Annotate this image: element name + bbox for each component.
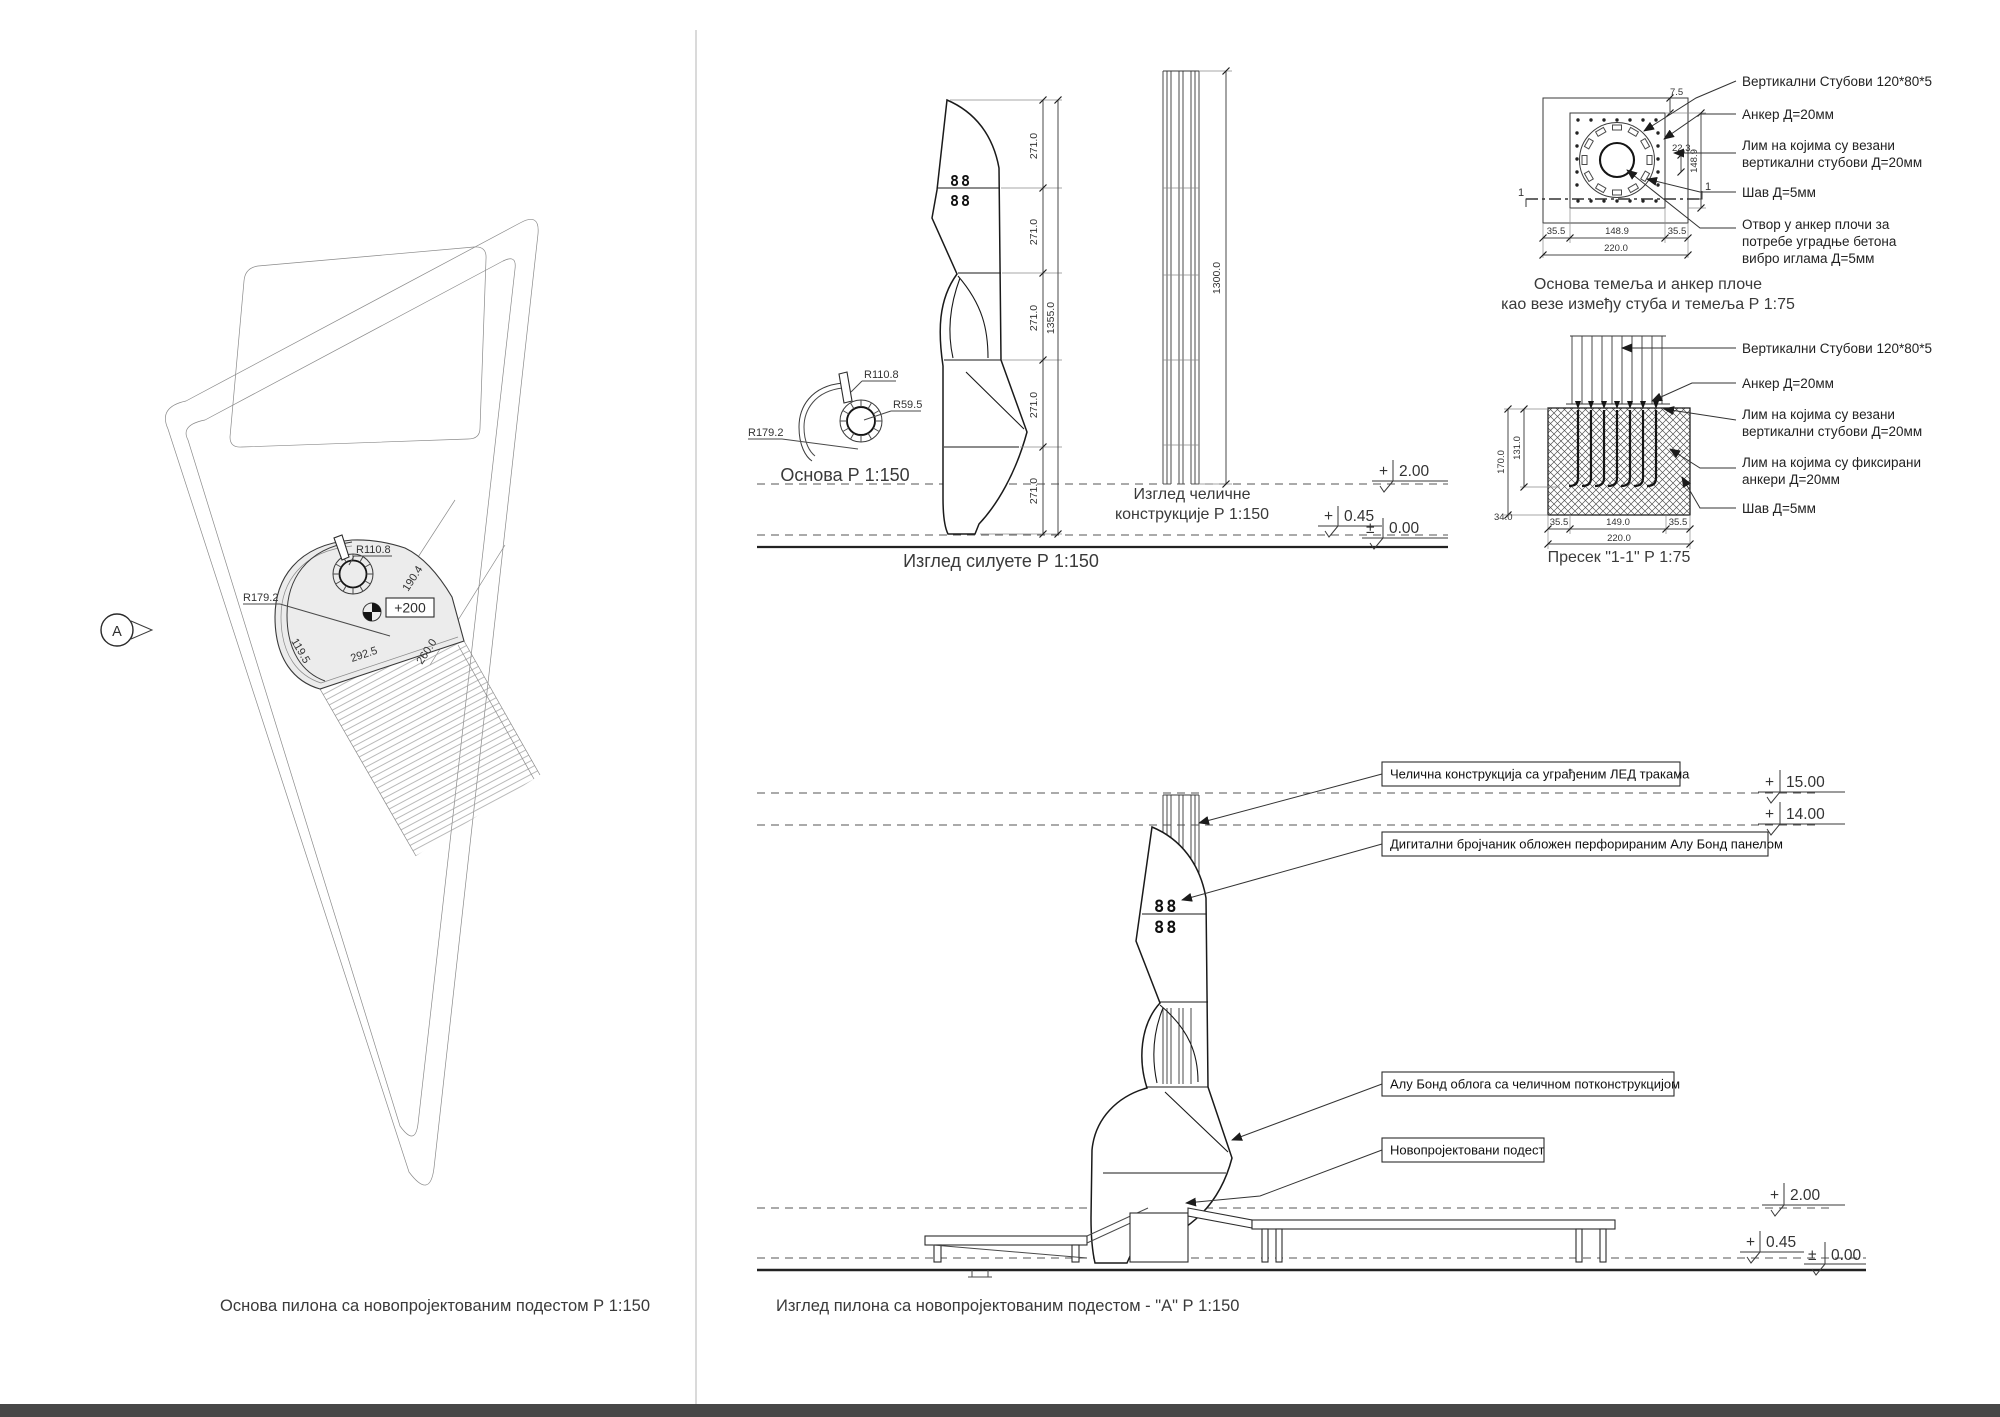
section-dim-b1: 35.5 <box>1550 517 1569 528</box>
plate-callout: вибро иглама Д=5мм <box>1742 251 1874 266</box>
view-marker-letter: А <box>112 624 122 640</box>
plate-callout: Анкер Д=20мм <box>1742 107 1834 122</box>
level-value: 0.00 <box>1831 1247 1862 1264</box>
podest-elevation <box>925 1208 1615 1277</box>
plate-callout: Лим на којима су везани <box>1742 138 1895 153</box>
section-dim-b3: 35.5 <box>1669 517 1688 528</box>
level-sign: + <box>1765 806 1774 823</box>
seg-dim: 271.0 <box>1028 478 1040 504</box>
elevation-callout-box: Алу Бонд облога са челичном потконструкц… <box>1390 1077 1680 1092</box>
plate-dim-btot: 220.0 <box>1604 243 1628 254</box>
base-radius-2: R59.5 <box>893 399 922 411</box>
section-callout: Анкер Д=20мм <box>1742 376 1834 391</box>
anchor-plate-view: 1 1 7.5 22.3 148.9 35.5 148.9 35.5 220.0… <box>1501 74 1932 313</box>
steel-caption-1: Изглед челичне <box>1133 486 1250 503</box>
silhouette-view: 1300.0 88 88 271.0 271.0 271.0 271.0 271… <box>748 68 1448 572</box>
base-radius-1: R110.8 <box>864 369 899 381</box>
section-callout: вертикални стубови Д=20мм <box>1742 424 1922 439</box>
section-dim-b2: 149.0 <box>1606 517 1630 528</box>
clock-display-row: 88 <box>1154 897 1178 917</box>
plate-dim-75: 7.5 <box>1670 87 1683 98</box>
total-dim: 1355.0 <box>1045 302 1057 334</box>
plate-dim-b2: 148.9 <box>1605 226 1629 237</box>
clock-display-row: 88 <box>950 192 972 210</box>
level-value: 2.00 <box>1790 1187 1821 1204</box>
level-sign: + <box>1770 1187 1779 1204</box>
plate-caption-1: Основа темеља и анкер плоче <box>1534 276 1762 293</box>
level-sign: ± <box>1808 1247 1817 1264</box>
section-dim-170: 170.0 <box>1496 450 1507 474</box>
section-mark: 1 <box>1705 181 1711 193</box>
section-callout: Лим на којима су фиксирани <box>1742 455 1921 470</box>
middle-levels: + 2.00 + 0.45 ± 0.00 <box>1318 460 1448 549</box>
view-marker-a: А <box>101 614 152 646</box>
section-dim-131: 131.0 <box>1512 436 1523 460</box>
drawing-sheet: +200 R110.8 R179.2 292.5 119.5 190.4 260… <box>0 0 2000 1417</box>
elevation-callout-box: Дигитални бројчаник обложен перфорираним… <box>1390 837 1783 852</box>
seg-dim: 271.0 <box>1028 219 1040 245</box>
seg-dim: 271.0 <box>1028 392 1040 418</box>
silhouette-caption: Изглед силуете Р 1:150 <box>903 551 1099 571</box>
base-detail: R110.8 R59.5 R179.2 Основа Р 1:150 <box>748 369 922 485</box>
plate-callout: потребе уградње бетона <box>1742 234 1897 249</box>
level-value: 15.00 <box>1786 774 1825 791</box>
section-caption: Пресек "1-1" Р 1:75 <box>1548 549 1691 566</box>
plate-callout: Шав Д=5мм <box>1742 185 1816 200</box>
elevation-callout-box: Челична конструкција са уграђеним ЛЕД тр… <box>1390 767 1690 782</box>
level-sign: + <box>1746 1234 1755 1251</box>
clock-display-row: 88 <box>1154 918 1178 938</box>
elevation-caption: Изглед пилона са новопројектованим подес… <box>776 1297 1239 1315</box>
plate-callout: Вертикални Стубови 120*80*5 <box>1742 74 1932 89</box>
level-value: 2.00 <box>1399 463 1430 480</box>
section-dim-34: 34.0 <box>1494 512 1513 523</box>
plan-radius-outer: R179.2 <box>243 592 278 604</box>
site-plan-view: +200 R110.8 R179.2 292.5 119.5 190.4 260… <box>101 219 650 1315</box>
pylon-silhouette <box>932 100 1027 534</box>
base-caption: Основа Р 1:150 <box>780 465 909 485</box>
steel-caption-2: конструкције Р 1:150 <box>1115 506 1269 523</box>
plate-callout: Отвор у анкер плочи за <box>1742 217 1890 232</box>
plan-radius-inner: R110.8 <box>356 544 391 556</box>
bolt-slots <box>1582 125 1652 195</box>
section-callout: Шав Д=5мм <box>1742 501 1816 516</box>
elevation-callouts: Челична конструкција са уграђеним ЛЕД тр… <box>1182 762 1783 1203</box>
steel-height-dim: 1300.0 <box>1211 262 1223 294</box>
site-plan-caption: Основа пилона са новопројектованим подес… <box>220 1297 650 1315</box>
plate-caption-2: као везе између стуба и темеља Р 1:75 <box>1501 296 1795 313</box>
level-sign: ± <box>1366 520 1375 537</box>
plate-dim-223: 22.3 <box>1672 143 1691 154</box>
foundation-block <box>1548 408 1690 515</box>
steel-structure: 1300.0 <box>1163 68 1232 488</box>
spot-level-value: +200 <box>394 600 426 616</box>
level-sign: + <box>1379 463 1388 480</box>
elevation-view: 88 88 Челична конструкција са уграђеним … <box>757 762 1866 1315</box>
plate-dim-b1: 35.5 <box>1547 226 1566 237</box>
plate-dim-b3: 35.5 <box>1668 226 1687 237</box>
section-mark: 1 <box>1518 187 1524 199</box>
seg-dim: 271.0 <box>1028 133 1040 159</box>
seg-dim: 271.0 <box>1028 305 1040 331</box>
section-dim-btot: 220.0 <box>1607 533 1631 544</box>
footer-bar <box>0 1404 2000 1417</box>
section-callout: Вертикални Стубови 120*80*5 <box>1742 341 1932 356</box>
section-callout: анкери Д=20мм <box>1742 472 1840 487</box>
section-callout: Лим на којима су везани <box>1742 407 1895 422</box>
clock-display-row: 88 <box>950 172 972 190</box>
elevation-callout-box: Новопројектовани подест <box>1390 1143 1544 1158</box>
level-sign: + <box>1324 508 1333 525</box>
level-value: 0.45 <box>1766 1234 1796 1251</box>
level-value: 0.00 <box>1389 520 1420 537</box>
plate-callout: вертикални стубови Д=20мм <box>1742 155 1922 170</box>
section-view: 170.0 131.0 34.0 35.5 149.0 35.5 220.0 П… <box>1494 336 1932 566</box>
level-value: 14.00 <box>1786 806 1825 823</box>
level-sign: + <box>1765 774 1774 791</box>
cad-canvas: +200 R110.8 R179.2 292.5 119.5 190.4 260… <box>0 0 2000 1417</box>
base-radius-3: R179.2 <box>748 427 783 439</box>
